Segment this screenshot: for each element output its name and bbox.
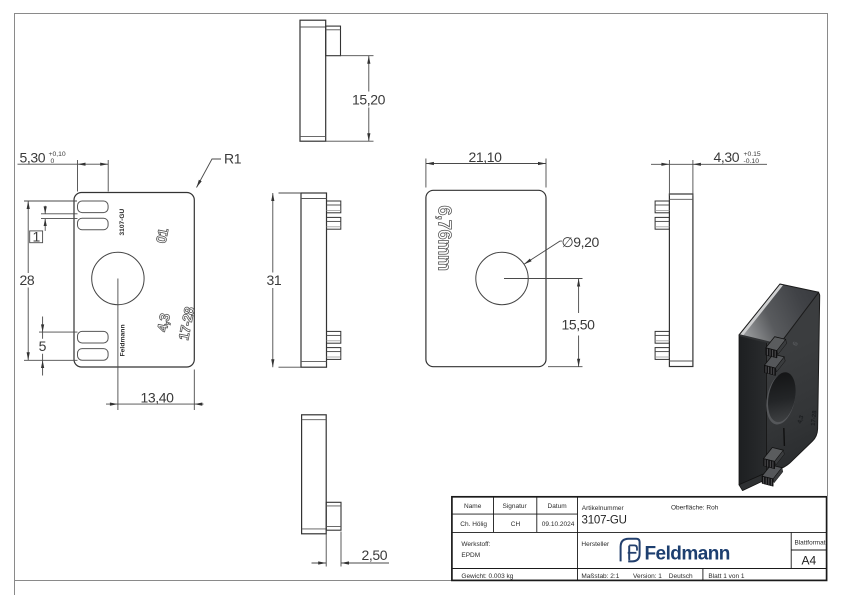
svg-text:Artikelnummer: Artikelnummer (582, 505, 625, 512)
svg-text:A4: A4 (802, 554, 817, 568)
svg-text:CH: CH (511, 521, 521, 528)
svg-text:Feldmann: Feldmann (120, 324, 127, 356)
svg-text:4,3: 4,3 (154, 312, 173, 333)
svg-text:13,40: 13,40 (141, 390, 175, 406)
svg-text:09.10.2024: 09.10.2024 (542, 521, 575, 528)
svg-text:Blatt 1 von 1: Blatt 1 von 1 (708, 573, 745, 580)
svg-text:+0,10: +0,10 (49, 151, 66, 158)
svg-text:3107-GU: 3107-GU (119, 209, 126, 236)
svg-text:Ch. Hölig: Ch. Hölig (460, 521, 487, 528)
svg-text:R1: R1 (224, 150, 242, 166)
svg-text:15,20: 15,20 (352, 92, 386, 108)
svg-text:6,76mm: 6,76mm (435, 206, 455, 271)
svg-text:3107-GU: 3107-GU (582, 515, 627, 527)
svg-text:Name: Name (464, 503, 482, 510)
svg-text:∅9,20: ∅9,20 (562, 234, 600, 250)
svg-text:15,50: 15,50 (562, 317, 596, 333)
svg-text:Maßstab: 2:1: Maßstab: 2:1 (581, 573, 619, 580)
svg-text:5,30: 5,30 (20, 150, 46, 166)
svg-text:-0.10: -0.10 (744, 158, 760, 165)
svg-text:Gewicht: 0.003 kg: Gewicht: 0.003 kg (461, 573, 513, 580)
svg-text:01: 01 (153, 227, 172, 245)
svg-text:Oberfläche: Roh: Oberfläche: Roh (671, 505, 719, 512)
svg-text:5: 5 (39, 338, 47, 354)
svg-text:Blattformat: Blattformat (795, 539, 826, 546)
svg-text:EPDM: EPDM (461, 552, 480, 559)
svg-text:Hersteller: Hersteller (581, 541, 610, 548)
svg-text:Version: 1: Version: 1 (633, 573, 662, 580)
svg-text:31: 31 (267, 272, 282, 288)
svg-text:4,30: 4,30 (714, 149, 740, 165)
svg-text:21,10: 21,10 (469, 149, 503, 165)
svg-text:0: 0 (51, 158, 55, 165)
svg-text:Datum: Datum (548, 503, 567, 510)
svg-text:Deutsch: Deutsch (669, 573, 693, 580)
svg-text:Werkstoff:: Werkstoff: (461, 541, 490, 548)
svg-text:1: 1 (33, 229, 41, 245)
svg-text:Signatur: Signatur (503, 503, 528, 510)
svg-text:+0.15: +0.15 (744, 151, 761, 158)
svg-text:28: 28 (20, 272, 35, 288)
svg-text:Feldmann: Feldmann (645, 543, 730, 564)
svg-text:2,50: 2,50 (362, 547, 388, 563)
